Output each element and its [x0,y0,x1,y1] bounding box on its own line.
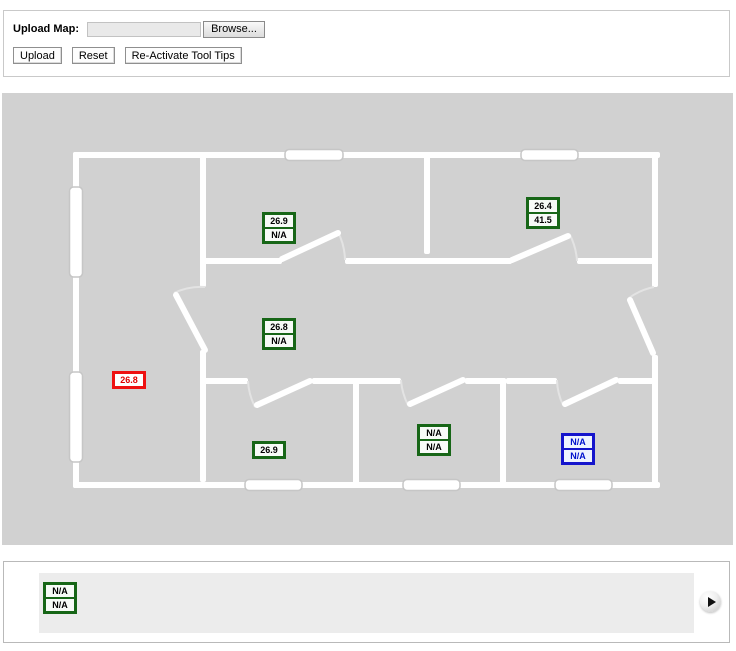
sensor-hall[interactable]: 26.8N/A [262,318,296,350]
upload-map-row: Upload Map: Browse... [13,20,265,38]
sensor-value: 26.8 [114,373,144,387]
floor-map: 26.9N/A26.441.526.8N/A26.826.9N/AN/AN/AN… [2,93,733,545]
sensor-value: 26.9 [254,443,284,457]
sensor-value: N/A [563,435,593,449]
upload-actions-row: Upload Reset Re-Activate Tool Tips [13,47,242,64]
upload-panel: Upload Map: Browse... Upload Reset Re-Ac… [3,10,730,77]
sensor-top-middle-room[interactable]: 26.9N/A [262,212,296,244]
sensor-value: N/A [45,584,75,598]
sensor-bottom-right-room[interactable]: N/AN/A [561,433,595,465]
sensor-top-right-room[interactable]: 26.441.5 [526,197,560,229]
carousel-next-button[interactable] [700,591,721,612]
sensor-value: N/A [264,334,294,348]
floor-plan [2,93,733,545]
play-icon [708,597,716,607]
sensor-value: 41.5 [528,213,558,227]
upload-map-label: Upload Map: [13,23,79,35]
carousel-sensor-slot: N/AN/A [43,582,77,614]
sensor-value: 26.8 [264,320,294,334]
sensor-map-page: Upload Map: Browse... Upload Reset Re-Ac… [0,0,736,651]
sensor-left-room[interactable]: 26.8 [112,371,146,389]
carousel-strip: N/AN/A [39,573,694,633]
sensor-unplaced[interactable]: N/AN/A [43,582,77,614]
sensor-carousel: N/AN/A [3,561,730,643]
sensor-bottom-left-room[interactable]: 26.9 [252,441,286,459]
sensor-value: 26.4 [528,199,558,213]
sensor-value: N/A [419,440,449,454]
sensor-value: N/A [563,449,593,463]
sensor-value: N/A [45,598,75,612]
sensor-bottom-mid-room[interactable]: N/AN/A [417,424,451,456]
sensor-value: N/A [264,228,294,242]
browse-button[interactable]: Browse... [203,21,265,38]
file-path-input[interactable] [87,22,201,37]
reactivate-tooltips-button[interactable]: Re-Activate Tool Tips [125,47,242,64]
upload-button[interactable]: Upload [13,47,62,64]
sensor-value: N/A [419,426,449,440]
reset-button[interactable]: Reset [72,47,115,64]
sensor-value: 26.9 [264,214,294,228]
